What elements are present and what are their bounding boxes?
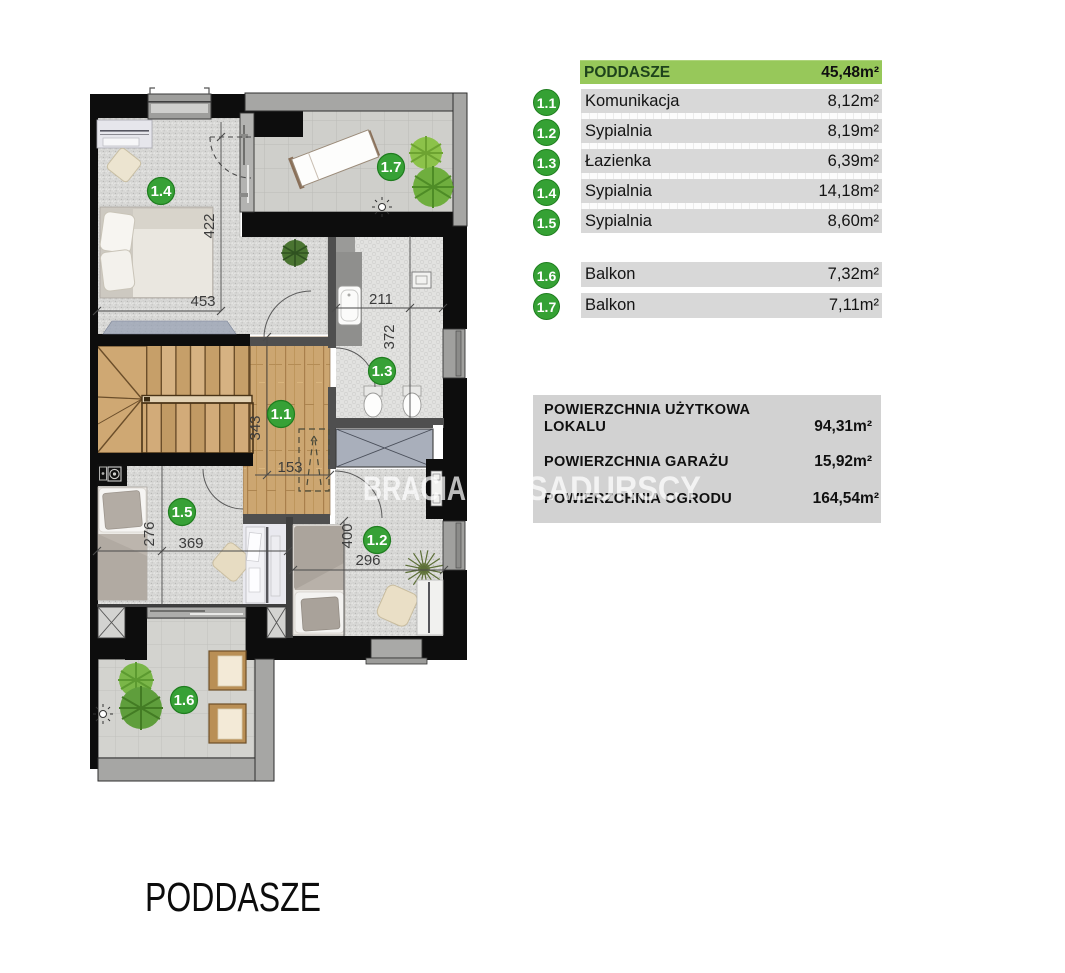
svg-text:343: 343 (247, 415, 264, 440)
svg-text:1.6: 1.6 (174, 692, 195, 709)
svg-text:453: 453 (190, 293, 215, 310)
svg-text:276: 276 (141, 521, 158, 546)
svg-text:400: 400 (339, 523, 356, 548)
svg-text:1.4: 1.4 (151, 183, 173, 200)
svg-text:372: 372 (381, 324, 398, 349)
svg-text:296: 296 (355, 552, 380, 569)
svg-text:1.1: 1.1 (271, 406, 292, 423)
svg-text:422: 422 (201, 213, 218, 238)
svg-text:211: 211 (369, 291, 393, 308)
svg-text:1.5: 1.5 (172, 504, 193, 521)
svg-text:369: 369 (178, 535, 203, 552)
svg-text:1.3: 1.3 (372, 363, 393, 380)
svg-text:1.7: 1.7 (381, 159, 402, 176)
svg-text:1.2: 1.2 (367, 532, 388, 549)
